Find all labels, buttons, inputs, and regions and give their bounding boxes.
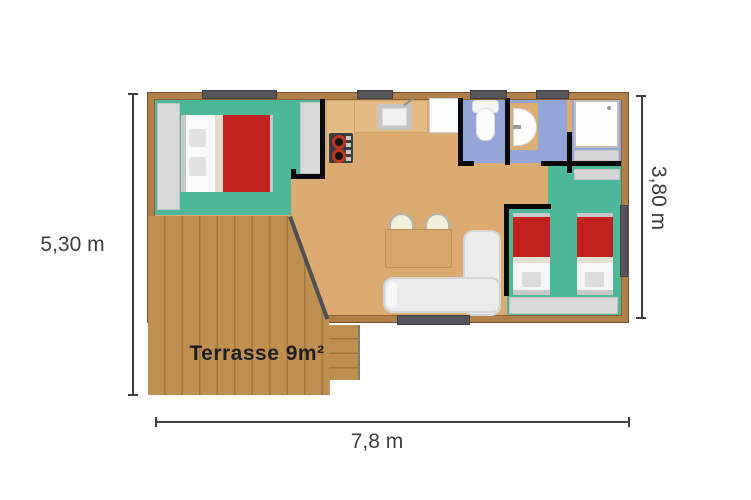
- stove-knob: [346, 136, 351, 140]
- floor-plan-canvas: Terrasse 9m² 5,30 m 3,80 m 7,8 m: [0, 0, 751, 500]
- master-bedroom-closet: [300, 102, 322, 174]
- stove-burner: [332, 149, 346, 163]
- master-bedroom-wardrobe: [157, 103, 180, 210]
- dimension-tick: [128, 93, 138, 95]
- stove-knob: [346, 143, 351, 147]
- sofa-corner: [463, 282, 497, 310]
- dimension-tick: [128, 394, 138, 396]
- dimension-tick: [636, 95, 646, 97]
- twin-bed-footboard: [577, 290, 613, 295]
- wall-master-bedroom-right: [320, 99, 325, 177]
- twin-bed-pillow: [522, 272, 541, 287]
- double-bed-footboard: [270, 115, 273, 192]
- wall-wc-bottom-stub: [458, 161, 474, 166]
- stove-burner: [332, 135, 346, 149]
- stove: [329, 133, 353, 163]
- terrace-label: Terrasse 9m²: [172, 342, 342, 366]
- wall-twin-bedroom-top: [504, 204, 551, 209]
- washbasin-faucet: [513, 125, 521, 129]
- kitchen-sink-basin: [382, 108, 407, 126]
- toilet-bowl: [476, 108, 495, 141]
- shower-drain: [607, 106, 611, 110]
- double-bed-red-duvet: [223, 115, 270, 192]
- double-bed-pillow: [189, 157, 206, 176]
- dimension-tick: [636, 317, 646, 319]
- window-twin-bedroom: [620, 205, 628, 277]
- dimension-line-bottom: [155, 421, 629, 423]
- twin-bed-red-duvet: [513, 217, 550, 257]
- dimension-label-bottom: 7,8 m: [332, 430, 422, 454]
- bathroom-shelf: [574, 150, 619, 161]
- window-kitchen: [357, 90, 393, 99]
- wall-kitchen-wc: [458, 98, 463, 165]
- dimension-label-right: 3,80 m: [646, 153, 670, 243]
- dimension-label-left: 5,30 m: [25, 233, 120, 257]
- wall-stub: [291, 169, 296, 179]
- twin-bed-red-duvet: [577, 217, 613, 257]
- shower-tray: [574, 100, 619, 148]
- twin-bedroom-wardrobe: [509, 297, 618, 314]
- wall-bathroom-bottom: [541, 161, 621, 166]
- wall-twin-bedroom-left: [504, 204, 509, 296]
- dining-table: [385, 229, 452, 268]
- twin-bed-footboard: [513, 290, 550, 295]
- window-wc: [470, 90, 507, 99]
- wall-wc-washbasin: [505, 98, 510, 165]
- twin-bed-pillow: [585, 272, 604, 287]
- window-washbasin: [536, 90, 569, 99]
- double-bed-pillow: [189, 129, 206, 147]
- dimension-tick: [628, 417, 630, 427]
- double-bed-mattress: [186, 115, 215, 192]
- stove-knob: [346, 150, 351, 154]
- dimension-tick: [155, 417, 157, 427]
- stove-knob: [346, 157, 351, 161]
- sofa-armrest: [387, 282, 397, 308]
- window-master-bedroom: [202, 90, 277, 99]
- dimension-line-left: [132, 93, 134, 395]
- wall-washbasin-shower: [567, 132, 572, 173]
- wall-master-bedroom-notch: [291, 174, 325, 179]
- double-bed-sheet-fold: [215, 115, 223, 192]
- bedroom-shelf: [574, 169, 620, 180]
- dimension-line-right: [641, 95, 643, 318]
- window-living-room: [397, 315, 470, 325]
